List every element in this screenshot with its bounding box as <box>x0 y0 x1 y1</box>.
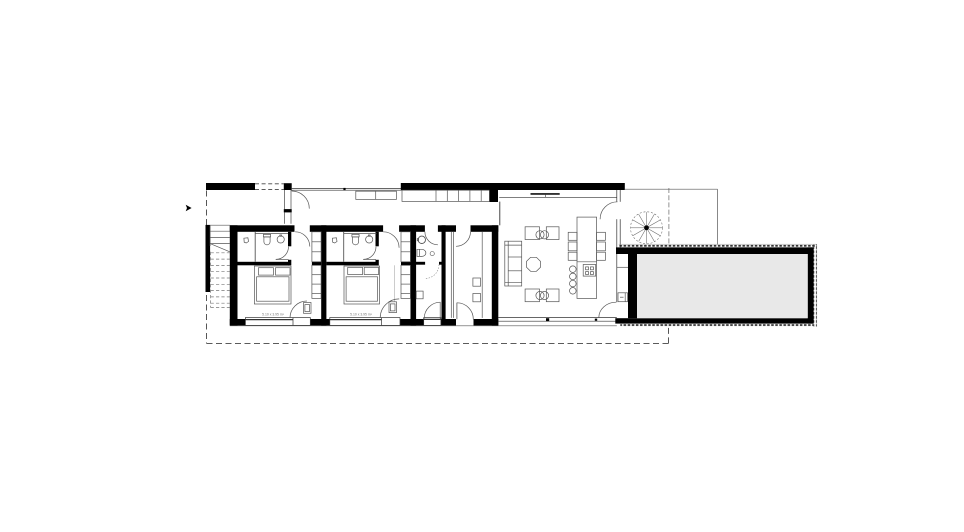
svg-text:5.10 x 3.95 m²: 5.10 x 3.95 m² <box>350 313 373 317</box>
svg-text:5.10 x 3.95 m²: 5.10 x 3.95 m² <box>262 313 285 317</box>
